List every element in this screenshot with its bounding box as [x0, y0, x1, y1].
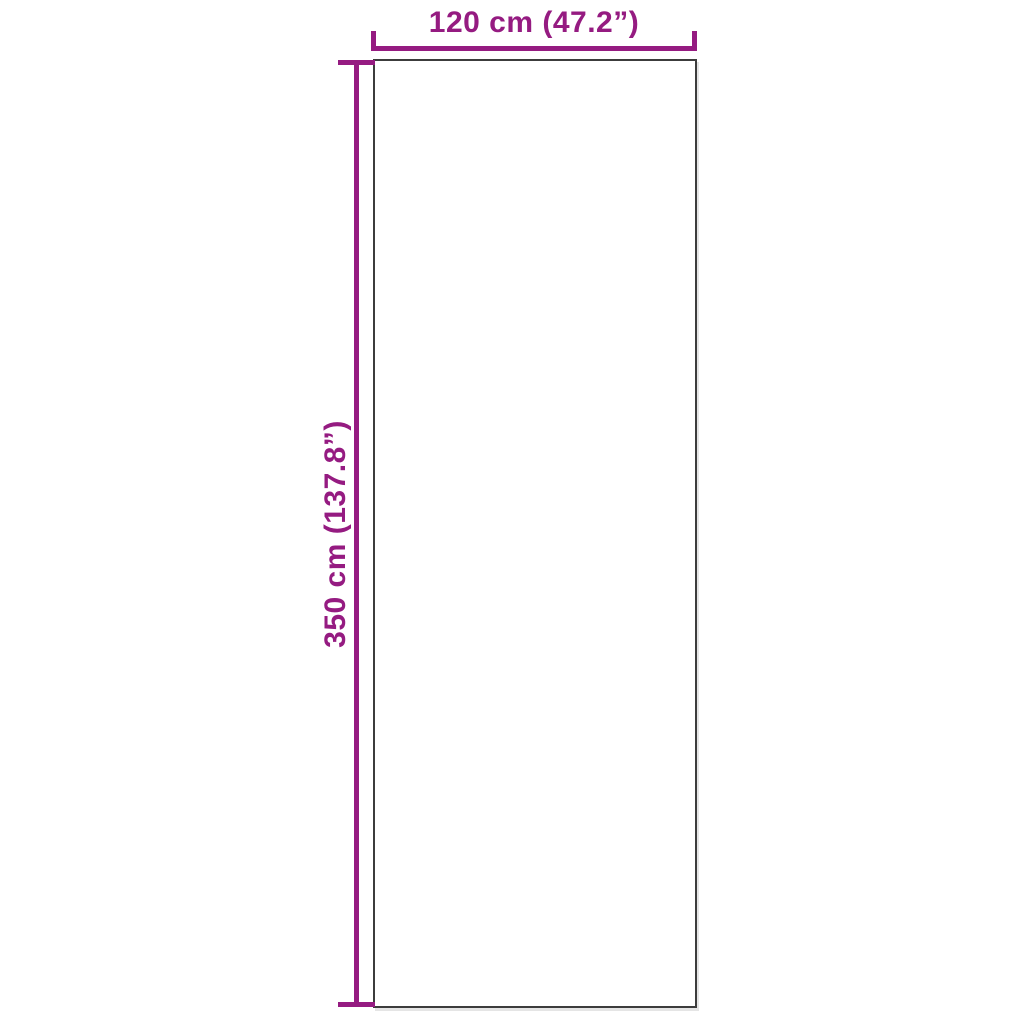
- dimension-diagram: 120 cm (47.2”) 350 cm (137.8”): [0, 0, 1024, 1024]
- height-dimension-line: [354, 60, 359, 1007]
- width-dimension-line: [371, 46, 697, 51]
- height-dimension-tick-bottom: [338, 1002, 375, 1007]
- width-dimension-label: 120 cm (47.2”): [371, 6, 697, 40]
- height-dimension-label: 350 cm (137.8”): [319, 324, 353, 744]
- height-dimension-tick-top: [338, 60, 375, 65]
- product-outline-rectangle: [373, 59, 697, 1008]
